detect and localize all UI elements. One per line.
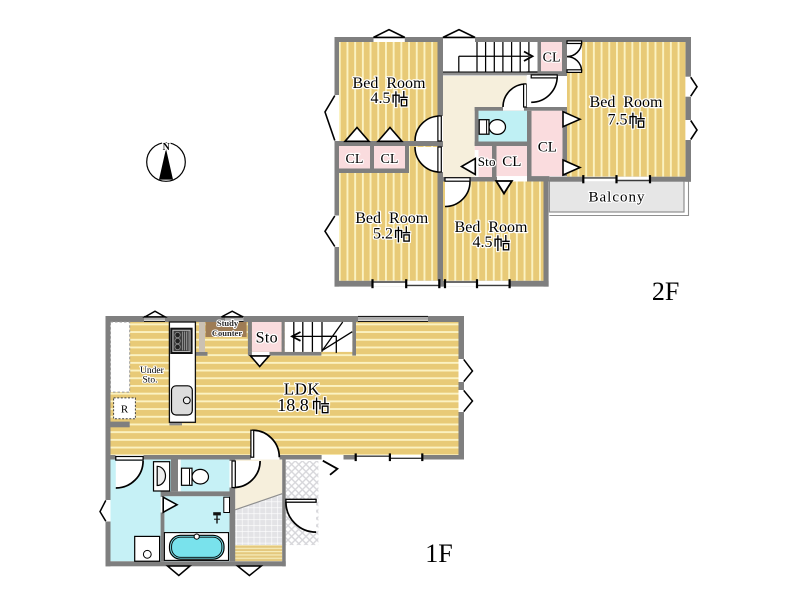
svg-text:Counter: Counter: [212, 328, 242, 338]
svg-text:Sto: Sto: [256, 330, 278, 347]
svg-text:5.2: 5.2: [373, 226, 393, 243]
svg-text:CL: CL: [543, 50, 561, 65]
svg-text:CL: CL: [346, 152, 364, 167]
svg-text:Under: Under: [140, 366, 165, 376]
svg-text:Bed Room: Bed Room: [590, 94, 663, 111]
svg-text:1F: 1F: [425, 539, 452, 568]
svg-text:4.5: 4.5: [371, 90, 391, 107]
svg-text:CL: CL: [502, 154, 521, 170]
svg-text:2F: 2F: [652, 277, 679, 306]
svg-text:Sto.: Sto.: [142, 375, 157, 385]
svg-text:Balcony: Balcony: [589, 190, 646, 206]
svg-text:18.8: 18.8: [277, 395, 309, 415]
svg-text:CL: CL: [538, 140, 557, 156]
svg-text:Sto: Sto: [478, 154, 496, 169]
svg-text:R: R: [121, 403, 129, 415]
svg-text:N: N: [163, 142, 171, 153]
svg-text:CL: CL: [381, 152, 399, 167]
svg-text:7.5: 7.5: [608, 112, 628, 129]
svg-text:Study: Study: [217, 318, 239, 328]
svg-text:4.5: 4.5: [473, 234, 493, 251]
